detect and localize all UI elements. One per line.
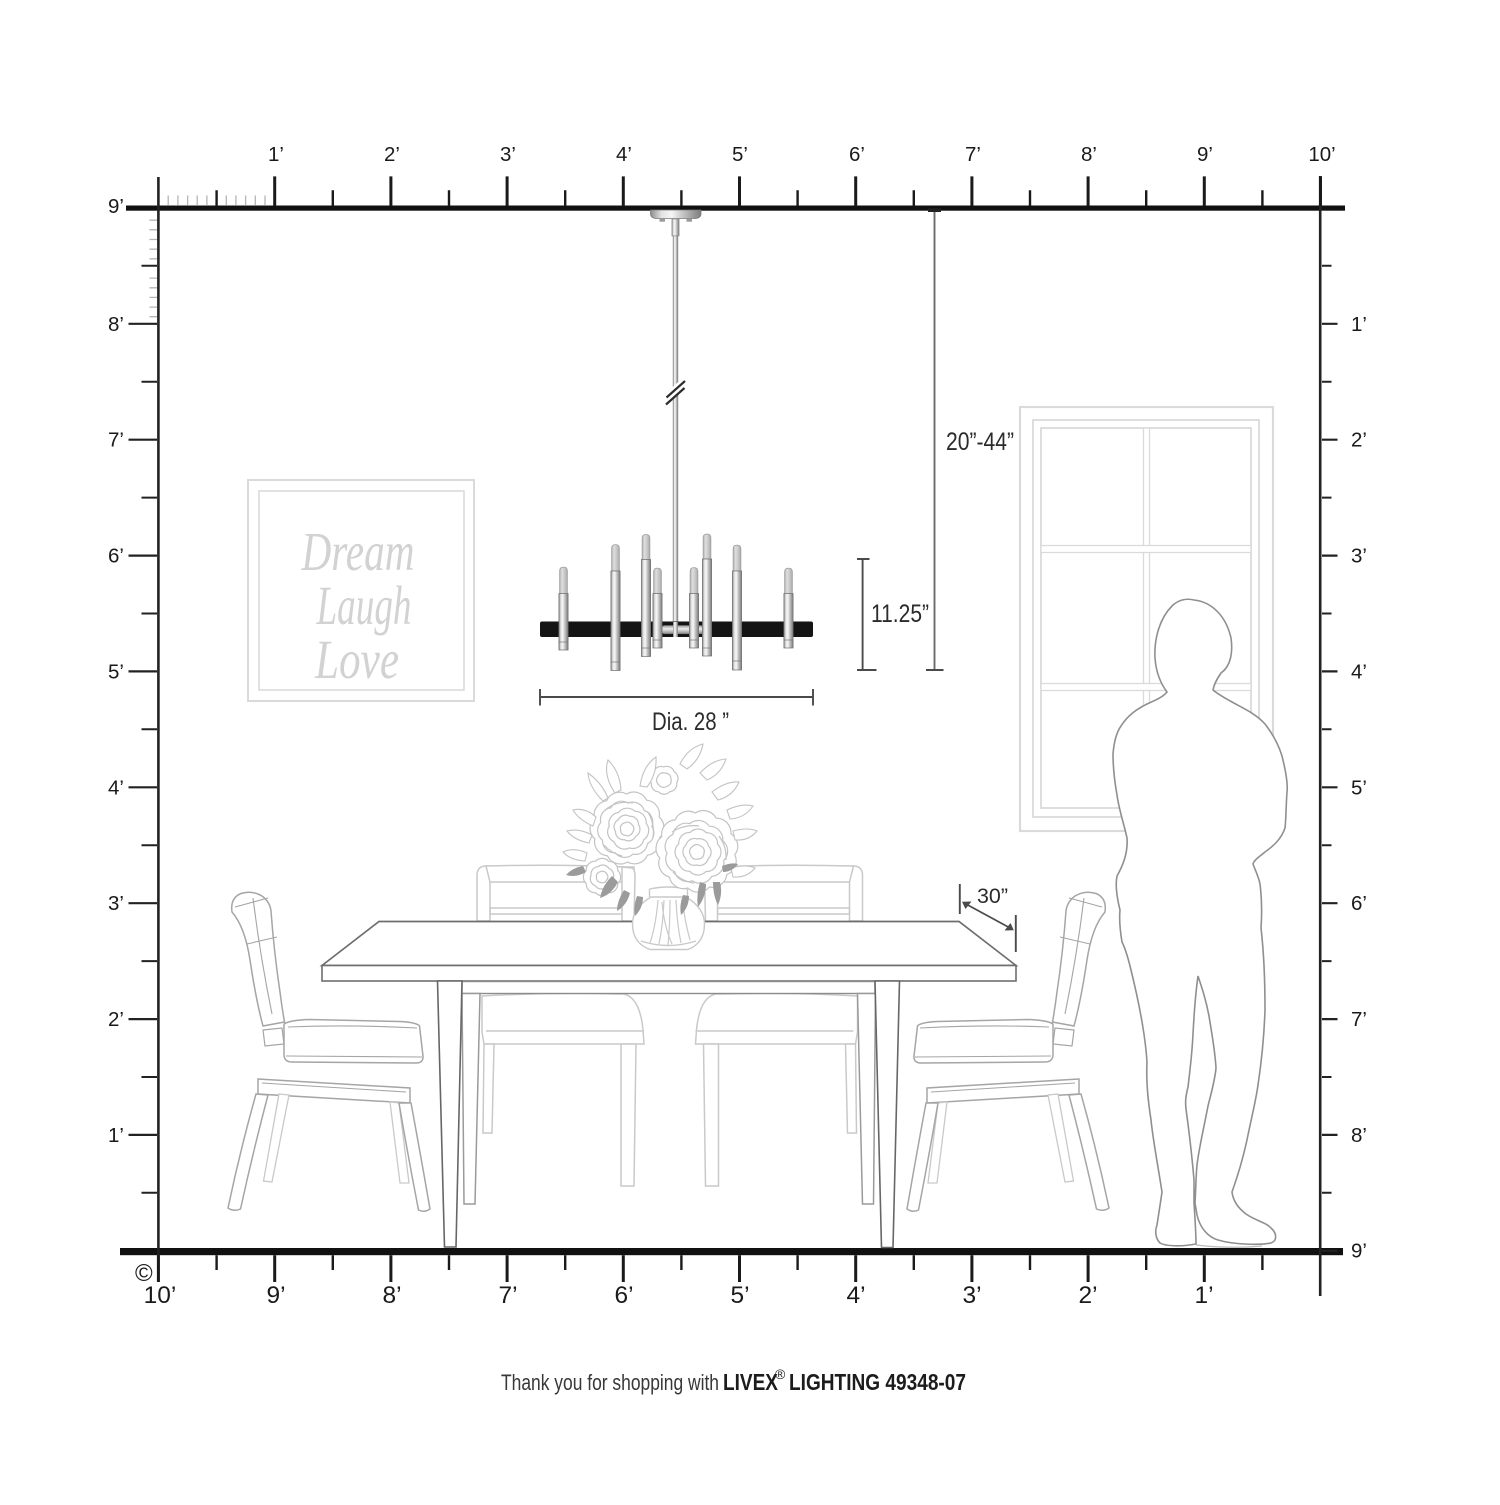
svg-text:9’: 9’: [108, 195, 124, 218]
svg-text:6’: 6’: [849, 143, 865, 166]
svg-text:7’: 7’: [965, 143, 981, 166]
svg-text:2’: 2’: [108, 1008, 124, 1031]
svg-text:4’: 4’: [108, 776, 124, 799]
svg-text:6’: 6’: [614, 1282, 633, 1309]
svg-text:®: ®: [775, 1366, 786, 1382]
svg-text:4’: 4’: [616, 143, 632, 166]
svg-text:4’: 4’: [1351, 660, 1367, 683]
svg-text:11.25”: 11.25”: [871, 600, 929, 628]
svg-text:5’: 5’: [730, 1282, 749, 1309]
svg-text:1’: 1’: [1194, 1282, 1213, 1309]
svg-text:3’: 3’: [1351, 545, 1367, 568]
svg-text:7’: 7’: [108, 429, 124, 452]
svg-text:9’: 9’: [266, 1282, 285, 1309]
svg-text:8’: 8’: [382, 1282, 401, 1309]
svg-text:LIGHTING 49348-07: LIGHTING 49348-07: [789, 1369, 966, 1395]
svg-text:Love: Love: [314, 629, 399, 690]
svg-text:1’: 1’: [1351, 313, 1367, 336]
svg-text:1’: 1’: [108, 1124, 124, 1147]
svg-text:30”: 30”: [977, 885, 1008, 908]
svg-text:2’: 2’: [384, 143, 400, 166]
svg-text:6’: 6’: [1351, 892, 1367, 915]
svg-text:8’: 8’: [1351, 1124, 1367, 1147]
svg-text:6’: 6’: [108, 545, 124, 568]
svg-text:©: ©: [135, 1260, 153, 1287]
svg-text:5’: 5’: [108, 660, 124, 683]
svg-text:7’: 7’: [498, 1282, 517, 1309]
svg-text:4’: 4’: [846, 1282, 865, 1309]
svg-text:Dia. 28 ”: Dia. 28 ”: [652, 708, 729, 736]
svg-text:9’: 9’: [1197, 143, 1213, 166]
svg-text:20”-44”: 20”-44”: [946, 428, 1014, 456]
svg-text:3’: 3’: [108, 892, 124, 915]
svg-text:3’: 3’: [962, 1282, 981, 1309]
svg-text:5’: 5’: [732, 143, 748, 166]
svg-text:8’: 8’: [1081, 143, 1097, 166]
svg-text:9’: 9’: [1351, 1240, 1367, 1263]
svg-text:Laugh: Laugh: [316, 575, 412, 636]
svg-text:LIVEX: LIVEX: [723, 1369, 778, 1395]
svg-text:7’: 7’: [1351, 1008, 1367, 1031]
svg-text:2’: 2’: [1351, 429, 1367, 452]
svg-text:Thank you for shopping with: Thank you for shopping with: [501, 1370, 719, 1395]
svg-text:5’: 5’: [1351, 776, 1367, 799]
svg-text:10’: 10’: [1308, 143, 1335, 166]
svg-text:Dream: Dream: [301, 521, 415, 582]
svg-text:1’: 1’: [268, 143, 284, 166]
svg-text:2’: 2’: [1078, 1282, 1097, 1309]
svg-text:3’: 3’: [500, 143, 516, 166]
svg-text:8’: 8’: [108, 313, 124, 336]
